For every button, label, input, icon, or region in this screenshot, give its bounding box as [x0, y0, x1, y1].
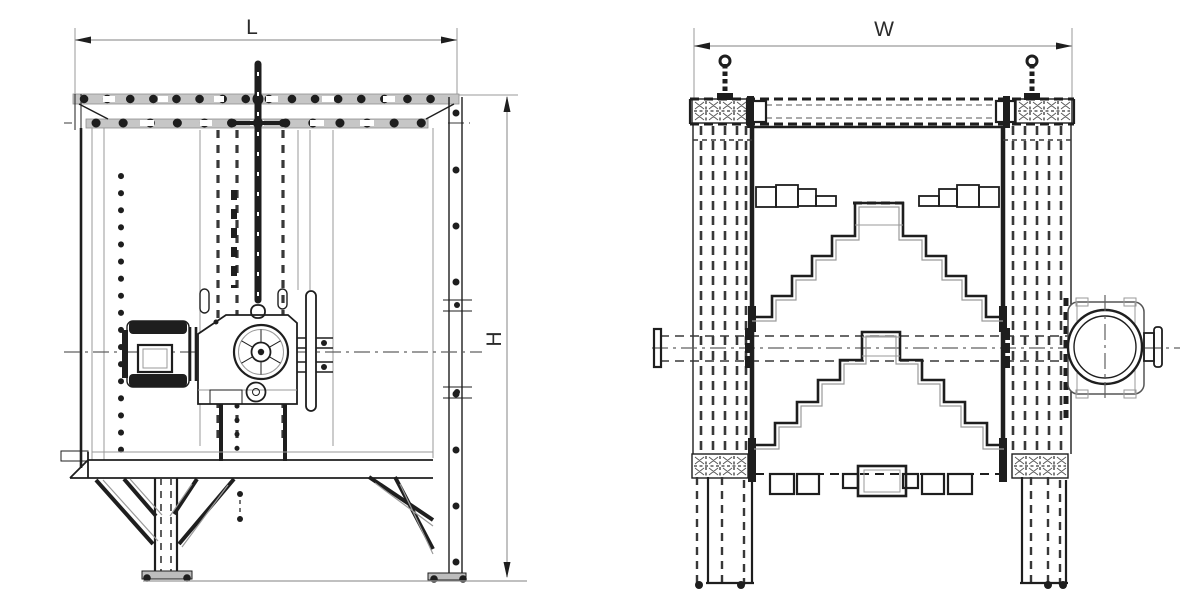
dimension-label-length: L [246, 16, 258, 39]
dimension-label-width: W [874, 18, 894, 41]
torque-arm-plate [306, 291, 316, 411]
technical-drawing: L H [0, 0, 1187, 606]
dimension-label-height: H [483, 331, 506, 346]
drawing-canvas: L H [0, 0, 1187, 606]
